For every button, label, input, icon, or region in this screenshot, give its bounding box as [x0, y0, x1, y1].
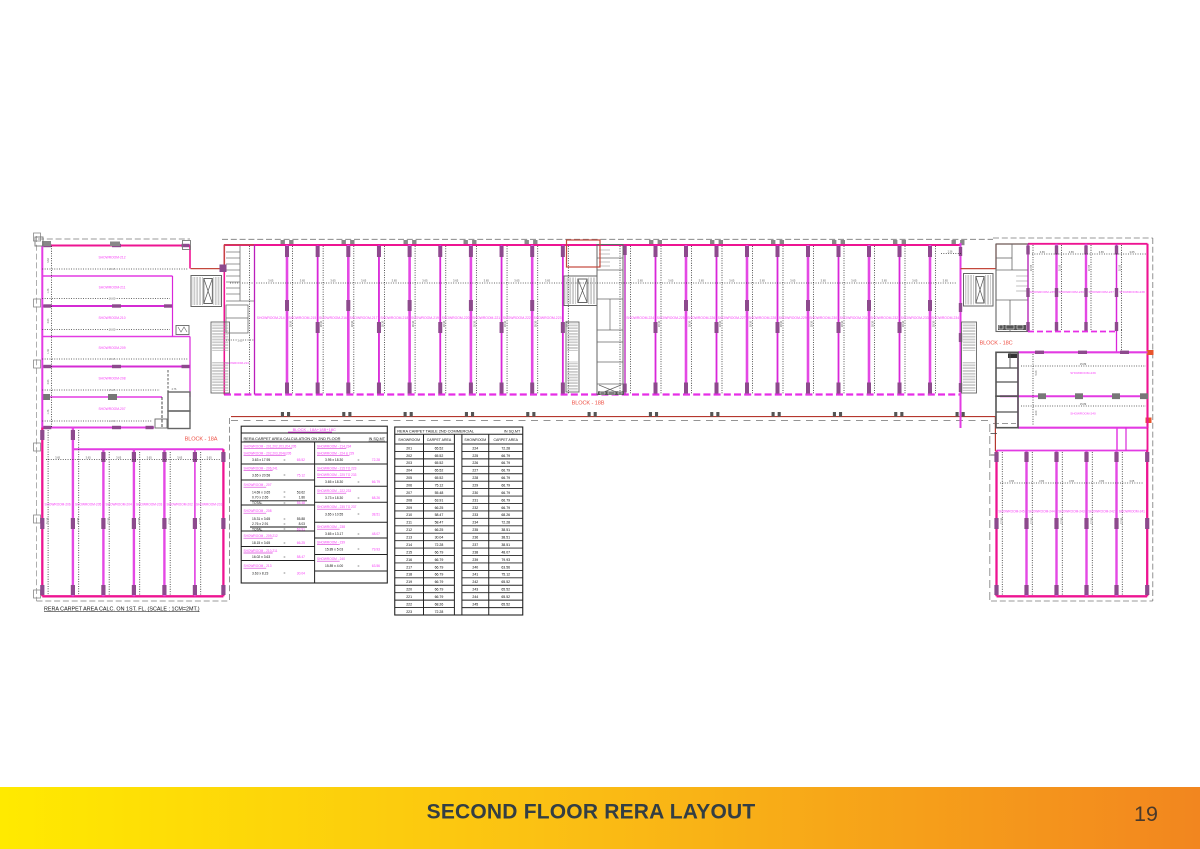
svg-text:243: 243: [472, 588, 478, 592]
svg-text:8.03: 8.03: [299, 522, 306, 526]
svg-text:SHOWROOM - 215 TO 223: SHOWROOM - 215 TO 223: [317, 467, 357, 471]
svg-text:17.95: 17.95: [77, 517, 80, 524]
svg-text:15.89 x 4.00: 15.89 x 4.00: [325, 564, 343, 568]
svg-text:=: =: [284, 522, 286, 526]
svg-text:68.26: 68.26: [372, 496, 380, 500]
svg-text:66.79: 66.79: [501, 498, 510, 502]
svg-text:=: =: [358, 548, 360, 552]
svg-text:TOTAL: TOTAL: [252, 501, 262, 505]
svg-text:18.15: 18.15: [109, 357, 116, 361]
svg-text:SHOWROOM-243: SHOWROOM-243: [1058, 510, 1084, 514]
svg-text:SHOWROOM: SHOWROOM: [398, 438, 420, 442]
svg-text:SHOWROOM-204: SHOWROOM-204: [106, 503, 132, 507]
svg-text:66.79: 66.79: [501, 454, 510, 458]
svg-text:15.25: 15.25: [109, 388, 116, 392]
svg-text:207: 207: [406, 491, 412, 495]
svg-text:3.65: 3.65: [1069, 479, 1075, 483]
svg-text:66.79: 66.79: [501, 469, 510, 473]
svg-text:66.79: 66.79: [435, 595, 444, 599]
svg-text:30.04: 30.04: [435, 536, 444, 540]
svg-text:214: 214: [406, 543, 412, 547]
svg-text:213: 213: [406, 536, 412, 540]
svg-text:SHOWROOM-230: SHOWROOM-230: [809, 316, 837, 320]
svg-text:SHOWROOM-241: SHOWROOM-241: [1119, 510, 1145, 514]
svg-text:72.28: 72.28: [372, 458, 380, 462]
svg-text:=: =: [284, 517, 286, 521]
svg-text:38.51: 38.51: [372, 513, 380, 517]
svg-text:18.30: 18.30: [657, 320, 661, 327]
svg-text:65.52: 65.52: [297, 458, 305, 462]
svg-text:65.52: 65.52: [435, 461, 444, 465]
svg-text:63.91: 63.91: [297, 527, 305, 531]
svg-text:241: 241: [472, 573, 478, 577]
svg-text:240: 240: [472, 565, 478, 569]
svg-text:SHOWROOM - 206,241: SHOWROOM - 206,241: [244, 467, 278, 471]
svg-text:=: =: [284, 458, 286, 462]
svg-text:3.65: 3.65: [147, 455, 153, 459]
svg-text:55.48: 55.48: [297, 501, 305, 505]
svg-text:66.79: 66.79: [435, 573, 444, 577]
svg-text:16.02 x 3.63: 16.02 x 3.63: [252, 555, 270, 559]
svg-text:225: 225: [472, 454, 478, 458]
svg-text:16.00: 16.00: [109, 328, 116, 332]
svg-text:212: 212: [406, 528, 412, 532]
svg-text:17.95: 17.95: [1091, 517, 1094, 524]
svg-text:SECOND FLOOR RERA LAYOUT: SECOND FLOOR RERA LAYOUT: [427, 801, 756, 824]
svg-text:3.65 x 13.17: 3.65 x 13.17: [325, 532, 343, 536]
svg-text:IN SQ.MT: IN SQ.MT: [504, 430, 521, 434]
svg-text:SHOWROOM-211: SHOWROOM-211: [99, 286, 126, 290]
svg-text:18.15 x 3.65: 18.15 x 3.65: [252, 541, 270, 545]
svg-text:SHOWROOM-202: SHOWROOM-202: [167, 503, 193, 507]
svg-text:18.30: 18.30: [319, 320, 323, 327]
svg-text:3.65: 3.65: [545, 279, 551, 283]
svg-text:226: 226: [472, 461, 478, 465]
svg-text:SHOWROOM-216: SHOWROOM-216: [319, 316, 347, 320]
svg-text:=: =: [358, 532, 360, 536]
svg-text:SHOWROOM - 222,233: SHOWROOM - 222,233: [317, 489, 351, 493]
svg-text:3.65: 3.65: [422, 279, 428, 283]
svg-text:3.65: 3.65: [912, 279, 918, 283]
svg-text:75.12: 75.12: [297, 474, 305, 478]
svg-text:15.89 x 5.03: 15.89 x 5.03: [325, 548, 343, 552]
svg-text:SHOWROOM-214: SHOWROOM-214: [257, 316, 285, 320]
svg-text:SHOWROOM-233: SHOWROOM-233: [901, 316, 929, 320]
svg-text:=: =: [284, 527, 286, 531]
svg-text:3.65: 3.65: [638, 279, 644, 283]
svg-text:SHOWROOM-236: SHOWROOM-236: [1059, 290, 1085, 294]
svg-text:17.95: 17.95: [1031, 517, 1034, 524]
svg-text:3.73 x 18.30: 3.73 x 18.30: [325, 496, 343, 500]
svg-text:3.65: 3.65: [330, 279, 336, 283]
svg-text:BLOCK - 18A: BLOCK - 18A: [185, 437, 218, 443]
svg-text:SHOWROOM - 214,234: SHOWROOM - 214,234: [317, 445, 351, 449]
svg-text:10.55: 10.55: [1119, 264, 1122, 271]
svg-text:227: 227: [472, 469, 478, 473]
svg-text:=: =: [284, 572, 286, 576]
svg-text:203: 203: [406, 461, 412, 465]
svg-text:18.30: 18.30: [442, 320, 446, 327]
svg-text:66.79: 66.79: [435, 580, 444, 584]
svg-text:72.28: 72.28: [435, 610, 444, 614]
svg-text:RERA CARPET AREA CALCULATION O: RERA CARPET AREA CALCULATION ON 2ND FLOO…: [244, 436, 341, 441]
svg-text:2.76 x 2.91: 2.76 x 2.91: [252, 522, 268, 526]
svg-text:3.65: 3.65: [453, 279, 459, 283]
svg-text:SHOWROOM - 238: SHOWROOM - 238: [317, 525, 345, 529]
svg-text:233: 233: [472, 513, 478, 517]
svg-text:18.30: 18.30: [411, 320, 415, 327]
svg-text:SHOWROOM - 224 & 229: SHOWROOM - 224 & 229: [317, 452, 354, 456]
svg-text:3.65: 3.65: [760, 279, 766, 283]
svg-text:SHOWROOM-228: SHOWROOM-228: [748, 316, 776, 320]
svg-text:3.65: 3.65: [207, 455, 213, 459]
svg-text:IN SQ.MT: IN SQ.MT: [369, 437, 386, 441]
svg-text:SHOWROOM-221: SHOWROOM-221: [472, 316, 500, 320]
svg-text:55.88: 55.88: [297, 517, 305, 521]
svg-text:18.30: 18.30: [932, 320, 936, 327]
svg-text:17.95: 17.95: [1121, 517, 1124, 524]
svg-text:18.30: 18.30: [380, 320, 384, 327]
svg-text:65.52: 65.52: [435, 476, 444, 480]
svg-text:SHOWROOM-225: SHOWROOM-225: [657, 316, 685, 320]
svg-text:224: 224: [472, 446, 478, 450]
svg-text:3.65: 3.65: [268, 279, 274, 283]
svg-text:72.28: 72.28: [501, 446, 510, 450]
svg-text:66.79: 66.79: [501, 506, 510, 510]
svg-text:3.63: 3.63: [47, 258, 50, 263]
svg-text:3.65 x 18.30: 3.65 x 18.30: [325, 480, 343, 484]
svg-text:229: 229: [472, 484, 478, 488]
svg-text:3.65: 3.65: [514, 279, 520, 283]
svg-text:BLOCK - 18A+18B+18C: BLOCK - 18A+18B+18C: [293, 427, 336, 432]
svg-text:10.55: 10.55: [1088, 264, 1091, 271]
svg-text:65.52: 65.52: [501, 588, 510, 592]
svg-text:BLOCK - 18C: BLOCK - 18C: [979, 341, 1012, 347]
svg-text:211: 211: [406, 521, 412, 525]
svg-text:204: 204: [406, 469, 412, 473]
svg-text:65.52: 65.52: [501, 602, 510, 606]
svg-text:3.65: 3.65: [1009, 479, 1015, 483]
svg-text:SHOWROOM - 202,203,204&205: SHOWROOM - 202,203,204&205: [244, 452, 292, 456]
svg-text:3.65: 3.65: [86, 455, 92, 459]
svg-text:SHOWROOM-213: SHOWROOM-213: [225, 361, 249, 365]
svg-text:=: =: [284, 496, 286, 500]
svg-text:68.26: 68.26: [435, 602, 444, 606]
svg-text:234: 234: [472, 521, 478, 525]
svg-text:0.70 x 2.65: 0.70 x 2.65: [252, 496, 268, 500]
svg-text:3.65: 3.65: [300, 279, 306, 283]
svg-text:SHOWROOM-231: SHOWROOM-231: [840, 316, 868, 320]
svg-text:SHOWROOM-208: SHOWROOM-208: [98, 376, 125, 380]
svg-text:15.89: 15.89: [1080, 362, 1087, 366]
svg-text:=: =: [284, 474, 286, 478]
svg-text:14.69 x 3.65: 14.69 x 3.65: [252, 491, 270, 495]
svg-text:SHOWROOM - 240: SHOWROOM - 240: [317, 557, 345, 561]
svg-text:1.86: 1.86: [299, 496, 306, 500]
svg-text:209: 209: [406, 506, 412, 510]
svg-text:63.56: 63.56: [372, 564, 380, 568]
svg-text:=: =: [358, 496, 360, 500]
svg-text:66.79: 66.79: [435, 588, 444, 592]
svg-text:SHOWROOM-222: SHOWROOM-222: [503, 316, 531, 320]
svg-text:SHOWROOM-226: SHOWROOM-226: [687, 316, 715, 320]
svg-text:SHOWROOM-224: SHOWROOM-224: [626, 316, 654, 320]
svg-text:18.30: 18.30: [871, 320, 875, 327]
svg-text:SHOWROOM-217: SHOWROOM-217: [350, 316, 378, 320]
svg-text:220: 220: [406, 588, 412, 592]
svg-text:18.30: 18.30: [289, 320, 293, 327]
svg-text:=: =: [284, 541, 286, 545]
svg-text:65.52: 65.52: [501, 595, 510, 599]
svg-text:63.56: 63.56: [501, 565, 510, 569]
svg-text:3.65: 3.65: [361, 279, 367, 283]
svg-text:79.93: 79.93: [501, 558, 510, 562]
svg-text:218: 218: [406, 573, 412, 577]
svg-text:18.30: 18.30: [810, 320, 814, 327]
svg-text:58.47: 58.47: [435, 521, 444, 525]
svg-text:231: 231: [472, 498, 478, 502]
svg-text:16.00: 16.00: [109, 297, 116, 301]
svg-text:2.36: 2.36: [948, 250, 953, 253]
svg-text:17.95: 17.95: [168, 517, 171, 524]
svg-text:SHOWROOM-244: SHOWROOM-244: [1028, 510, 1054, 514]
svg-text:SHOWROOM-201: SHOWROOM-201: [196, 503, 222, 507]
svg-text:222: 222: [406, 602, 412, 606]
svg-text:RERA CARPET TABLE 2ND COMMERCI: RERA CARPET TABLE 2ND COMMERCIAL: [397, 429, 475, 434]
svg-text:SHOWROOM-239: SHOWROOM-239: [1070, 371, 1096, 375]
svg-text:3.65 x 10.55: 3.65 x 10.55: [325, 513, 343, 517]
svg-text:66.79: 66.79: [435, 565, 444, 569]
svg-text:SHOWROOM - 201,202,203,204,205: SHOWROOM - 201,202,203,204,205: [244, 445, 297, 449]
svg-text:3.65: 3.65: [1129, 250, 1135, 254]
svg-text:17.95: 17.95: [1001, 517, 1004, 524]
svg-text:CARPET AREA: CARPET AREA: [494, 438, 519, 442]
svg-text:3.65: 3.65: [55, 455, 61, 459]
svg-text:66.79: 66.79: [501, 461, 510, 465]
svg-text:SHOWROOM - 209,212: SHOWROOM - 209,212: [244, 534, 278, 538]
svg-text:219: 219: [406, 580, 412, 584]
svg-text:55.48: 55.48: [435, 491, 444, 495]
svg-text:CARPET AREA: CARPET AREA: [427, 438, 452, 442]
svg-text:18.30: 18.30: [688, 320, 692, 327]
svg-text:18.30: 18.30: [901, 320, 905, 327]
svg-text:232: 232: [472, 506, 478, 510]
svg-text:63.91: 63.91: [435, 498, 444, 502]
svg-text:66.25: 66.25: [435, 528, 444, 532]
svg-text:75.12: 75.12: [435, 484, 444, 488]
svg-text:237: 237: [472, 543, 478, 547]
svg-text:3.65: 3.65: [699, 279, 705, 283]
svg-text:SHOWROOM - 239: SHOWROOM - 239: [317, 541, 345, 545]
svg-text:215: 215: [406, 550, 412, 554]
svg-text:3.65: 3.65: [943, 279, 949, 283]
svg-text:SHOWROOM: SHOWROOM: [464, 438, 486, 442]
svg-text:1.46: 1.46: [47, 409, 50, 414]
svg-text:=: =: [358, 480, 360, 484]
svg-text:66.79: 66.79: [435, 558, 444, 562]
svg-text:66.79: 66.79: [435, 550, 444, 554]
svg-text:3.65: 3.65: [882, 279, 888, 283]
svg-text:1.46: 1.46: [47, 288, 50, 293]
svg-text:SHOWROOM-207: SHOWROOM-207: [98, 407, 125, 411]
svg-text:66.25: 66.25: [297, 541, 305, 545]
svg-text:208: 208: [406, 498, 412, 502]
svg-text:18.30: 18.30: [749, 320, 753, 327]
svg-text:SHOWROOM - 225 TO 233: SHOWROOM - 225 TO 233: [317, 473, 357, 477]
svg-text:10.55: 10.55: [1059, 264, 1062, 271]
svg-text:3.65: 3.65: [821, 279, 827, 283]
svg-text:79.93: 79.93: [372, 548, 380, 552]
svg-text:3.63: 3.63: [47, 379, 50, 384]
svg-text:5.03: 5.03: [1035, 370, 1038, 375]
svg-text:SHOWROOM-209: SHOWROOM-209: [98, 346, 125, 350]
svg-text:235: 235: [472, 528, 478, 532]
svg-text:19: 19: [1134, 802, 1158, 826]
svg-text:65.52: 65.52: [435, 469, 444, 473]
svg-text:SHOWROOM-232: SHOWROOM-232: [870, 316, 898, 320]
svg-text:=: =: [358, 458, 360, 462]
svg-text:BLOCK - 18B: BLOCK - 18B: [572, 401, 605, 407]
svg-text:38.51: 38.51: [501, 528, 510, 532]
svg-text:SHOWROOM-220: SHOWROOM-220: [442, 316, 470, 320]
svg-text:15.89: 15.89: [1080, 402, 1087, 406]
svg-text:38.51: 38.51: [501, 536, 510, 540]
svg-text:3.65: 3.65: [1129, 479, 1135, 483]
svg-text:66.25: 66.25: [435, 506, 444, 510]
svg-text:230: 230: [472, 491, 478, 495]
svg-text:RERA CARPET AREA CALC. ON 1ST.: RERA CARPET AREA CALC. ON 1ST. FL. (SCAL…: [44, 606, 200, 612]
svg-text:65.52: 65.52: [435, 446, 444, 450]
svg-text:1.46: 1.46: [47, 349, 50, 354]
svg-text:3.65: 3.65: [116, 455, 122, 459]
svg-text:18.30: 18.30: [472, 320, 476, 327]
svg-text:18.30: 18.30: [350, 320, 354, 327]
svg-text:3.65: 3.65: [729, 279, 735, 283]
svg-text:SHOWROOM-215: SHOWROOM-215: [288, 316, 316, 320]
svg-text:48.07: 48.07: [501, 550, 510, 554]
svg-text:SHOWROOM - 210,211: SHOWROOM - 210,211: [244, 549, 278, 553]
svg-text:3.65: 3.65: [851, 279, 857, 283]
svg-text:SHOWROOM-238: SHOWROOM-238: [1119, 290, 1145, 294]
svg-text:SHOWROOM-210: SHOWROOM-210: [98, 316, 125, 320]
svg-text:2.65: 2.65: [238, 340, 243, 343]
svg-text:SHOWROOM - 208: SHOWROOM - 208: [244, 509, 272, 513]
svg-text:66.79: 66.79: [501, 484, 510, 488]
svg-text:TOTAL: TOTAL: [252, 527, 262, 531]
svg-text:SHOWROOM-206: SHOWROOM-206: [44, 503, 70, 507]
svg-text:206: 206: [406, 484, 412, 488]
svg-text:238: 238: [472, 550, 478, 554]
svg-text:SHOWROOM-212: SHOWROOM-212: [98, 255, 125, 259]
svg-text:18.15: 18.15: [109, 267, 116, 271]
svg-text:236: 236: [472, 536, 478, 540]
svg-text:68.26: 68.26: [501, 513, 510, 517]
svg-text:3.65: 3.65: [1040, 250, 1046, 254]
svg-text:30.04: 30.04: [297, 572, 305, 576]
svg-text:17.95: 17.95: [199, 517, 202, 524]
svg-text:228: 228: [472, 476, 478, 480]
svg-text:66.79: 66.79: [372, 480, 380, 484]
svg-text:3.65: 3.65: [668, 279, 674, 283]
svg-text:SHOWROOM-219: SHOWROOM-219: [411, 316, 439, 320]
svg-text:3.63 x 17.95: 3.63 x 17.95: [252, 458, 270, 462]
svg-text:205: 205: [406, 476, 412, 480]
svg-text:2.76: 2.76: [172, 388, 177, 391]
svg-text:3.65: 3.65: [392, 279, 398, 283]
svg-text:SHOWROOM-205: SHOWROOM-205: [75, 503, 101, 507]
svg-text:3.65: 3.65: [1099, 479, 1105, 483]
svg-text:66.79: 66.79: [501, 491, 510, 495]
svg-text:3.65: 3.65: [790, 279, 796, 283]
svg-text:17.95: 17.95: [107, 517, 110, 524]
svg-text:244: 244: [472, 595, 478, 599]
svg-text:=: =: [358, 513, 360, 517]
svg-text:=: =: [284, 501, 286, 505]
svg-text:18.30: 18.30: [779, 320, 783, 327]
svg-text:53.62: 53.62: [297, 491, 305, 495]
svg-text:201: 201: [406, 446, 412, 450]
svg-text:SHOWROOM-223: SHOWROOM-223: [534, 316, 562, 320]
svg-text:3.65: 3.65: [1099, 250, 1105, 254]
svg-text:75.12: 75.12: [501, 573, 510, 577]
svg-text:239: 239: [472, 558, 478, 562]
svg-text:3.63: 3.63: [47, 318, 50, 323]
svg-text:15.31 x 3.65: 15.31 x 3.65: [252, 517, 270, 521]
svg-text:3.65: 3.65: [177, 455, 183, 459]
svg-text:4.00: 4.00: [1035, 410, 1038, 415]
svg-text:216: 216: [406, 558, 412, 562]
svg-text:SHOWROOM-235: SHOWROOM-235: [1030, 290, 1056, 294]
svg-text:65.52: 65.52: [501, 580, 510, 584]
svg-text:10.55: 10.55: [1030, 264, 1033, 271]
svg-text:18.30: 18.30: [503, 320, 507, 327]
svg-text:SHOWROOM-227: SHOWROOM-227: [718, 316, 746, 320]
svg-text:3.63 x 8.23: 3.63 x 8.23: [252, 572, 268, 576]
svg-text:3.95 x 18.30: 3.95 x 18.30: [325, 458, 343, 462]
svg-text:48.07: 48.07: [372, 532, 380, 536]
svg-text:221: 221: [406, 595, 412, 599]
svg-text:242: 242: [472, 580, 478, 584]
svg-text:SHOWROOM-237: SHOWROOM-237: [1089, 290, 1115, 294]
svg-text:14.69: 14.69: [109, 419, 116, 423]
svg-text:SHOWROOM-218: SHOWROOM-218: [380, 316, 408, 320]
svg-text:SHOWROOM - 213: SHOWROOM - 213: [244, 564, 272, 568]
svg-text:20.58: 20.58: [46, 517, 49, 524]
svg-text:SHOWROOM-240: SHOWROOM-240: [1070, 412, 1096, 416]
svg-text:SHOWROOM - 207: SHOWROOM - 207: [244, 483, 272, 487]
svg-text:72.28: 72.28: [435, 543, 444, 547]
svg-text:3.65 x 20.58: 3.65 x 20.58: [252, 474, 270, 478]
svg-text:3.65: 3.65: [1039, 479, 1045, 483]
svg-text:17.95: 17.95: [1061, 517, 1064, 524]
svg-text:SHOWROOM-245: SHOWROOM-245: [998, 510, 1024, 514]
svg-text:58.47: 58.47: [297, 555, 305, 559]
svg-text:223: 223: [406, 610, 412, 614]
svg-text:=: =: [358, 564, 360, 568]
svg-text:202: 202: [406, 454, 412, 458]
svg-text:17.95: 17.95: [138, 517, 141, 524]
svg-text:18.30: 18.30: [840, 320, 844, 327]
svg-text:72.28: 72.28: [501, 521, 510, 525]
svg-text:SHOWROOM-242: SHOWROOM-242: [1088, 510, 1114, 514]
svg-text:3.65: 3.65: [1069, 250, 1075, 254]
svg-text:245: 245: [472, 602, 478, 606]
svg-text:38.51: 38.51: [501, 543, 510, 547]
svg-text:SHOWROOM-234: SHOWROOM-234: [931, 316, 959, 320]
svg-text:58.47: 58.47: [435, 513, 444, 517]
svg-text:SHOWROOM-203: SHOWROOM-203: [136, 503, 162, 507]
svg-text:65.52: 65.52: [435, 454, 444, 458]
